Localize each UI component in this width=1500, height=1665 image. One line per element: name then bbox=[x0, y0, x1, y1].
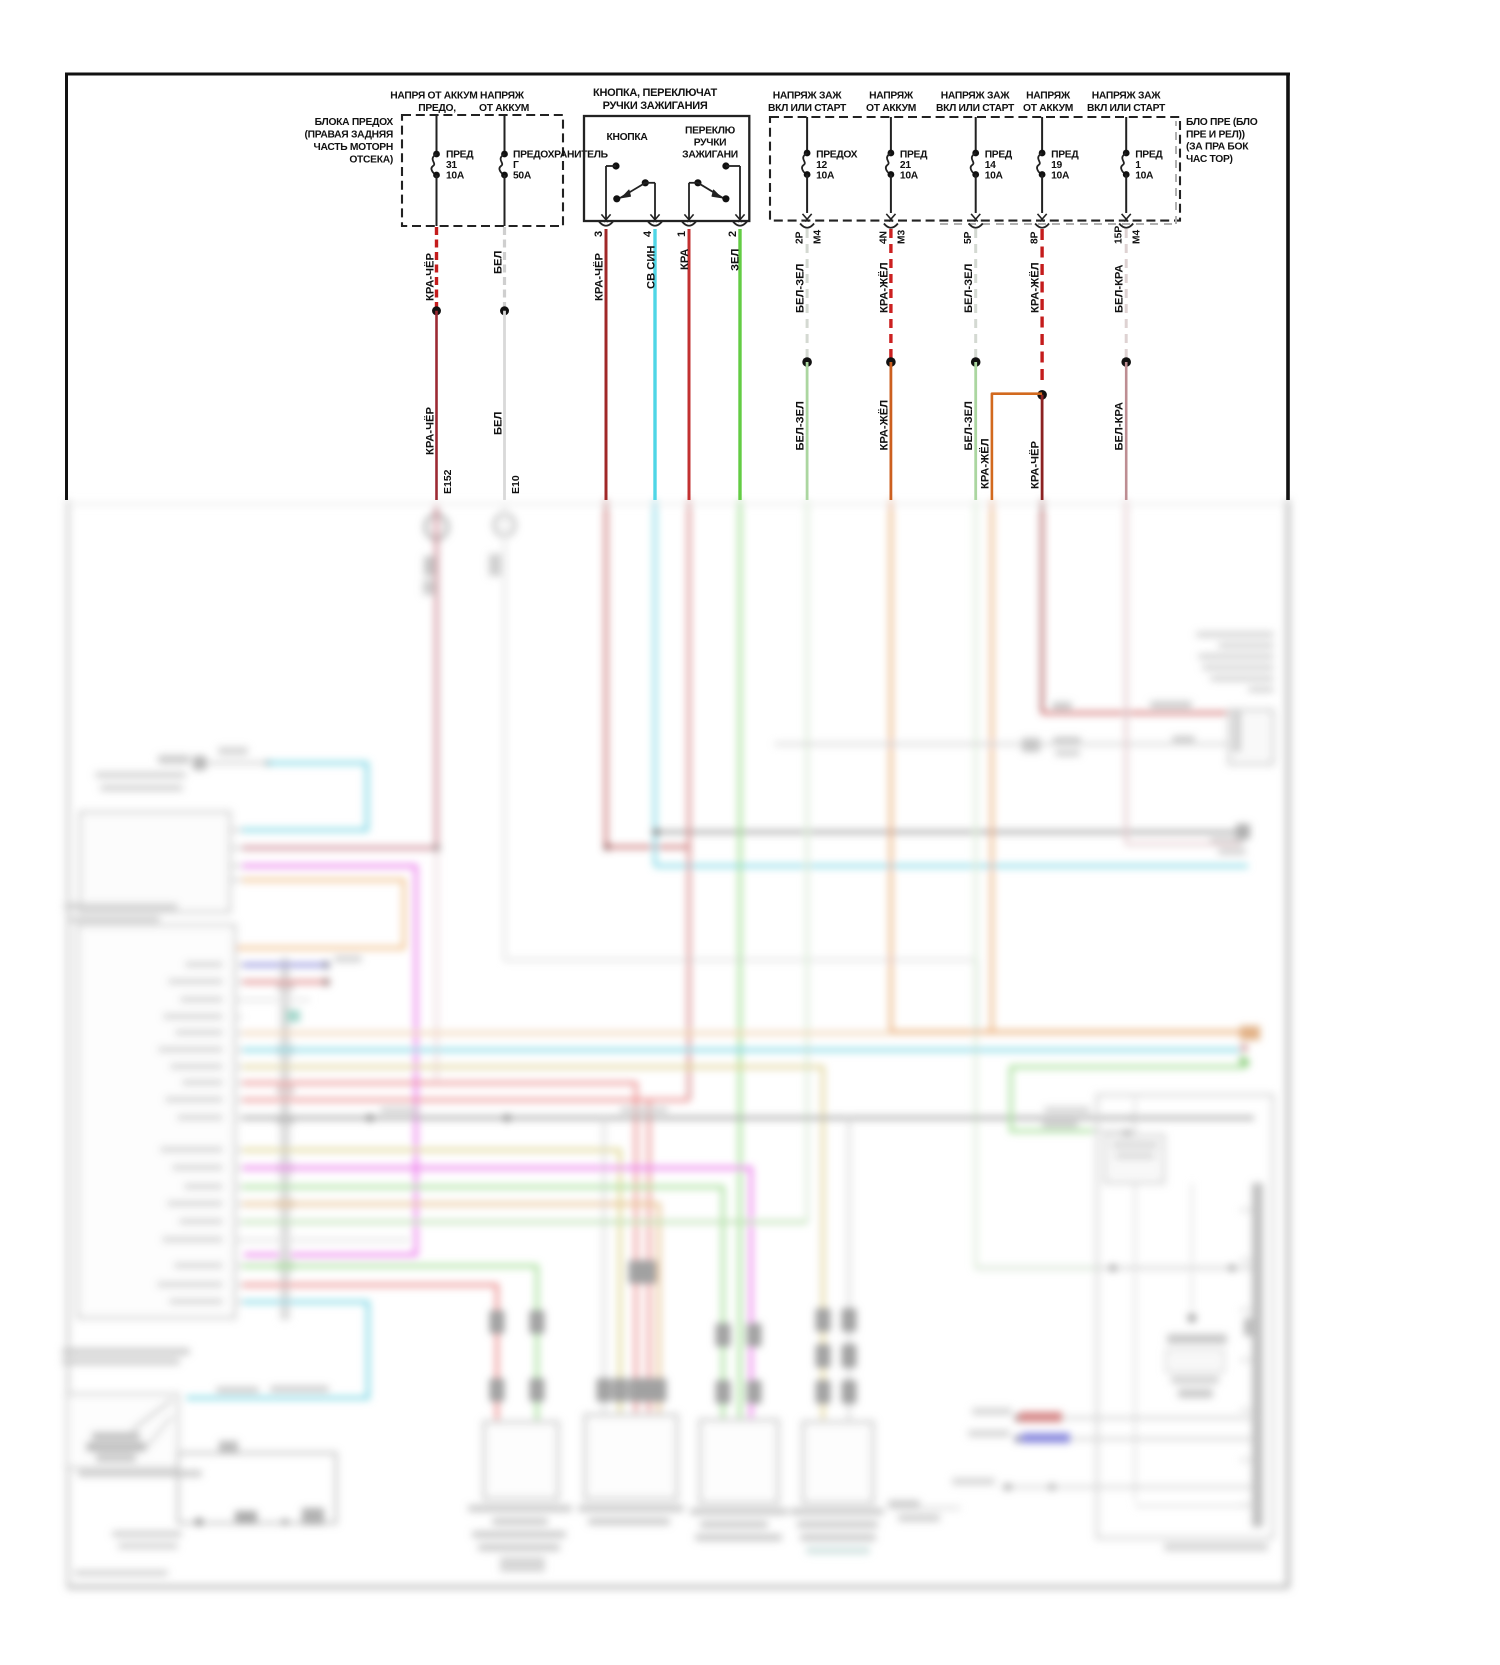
svg-text:ЗЕЛ: ЗЕЛ bbox=[730, 249, 742, 271]
svg-text:ОТ АККУМ: ОТ АККУМ bbox=[866, 103, 916, 114]
svg-text:M4: M4 bbox=[813, 230, 824, 244]
svg-text:ПРЕДОХРАНИТЕЛЬ: ПРЕДОХРАНИТЕЛЬ bbox=[513, 150, 609, 161]
svg-text:КРА-ЖЁЛ: КРА-ЖЁЛ bbox=[877, 400, 890, 451]
svg-text:(ПРАВАЯ ЗАДНЯЯ: (ПРАВАЯ ЗАДНЯЯ bbox=[305, 130, 394, 141]
svg-text:ПРЕДОХ: ПРЕДОХ bbox=[816, 150, 858, 161]
svg-text:ПРЕД: ПРЕД bbox=[1135, 150, 1163, 161]
svg-text:ПРЕД: ПРЕД bbox=[900, 150, 928, 161]
svg-text:ПРЕД: ПРЕД bbox=[446, 150, 474, 161]
svg-text:КРА: КРА bbox=[679, 249, 691, 270]
svg-text:10А: 10А bbox=[1135, 171, 1154, 182]
svg-text:БЕЛ: БЕЛ bbox=[493, 250, 505, 274]
svg-text:1: 1 bbox=[1135, 160, 1141, 171]
svg-text:10А: 10А bbox=[900, 171, 919, 182]
svg-text:БЕЛ-КРА: БЕЛ-КРА bbox=[1114, 265, 1126, 313]
svg-text:Е10: Е10 bbox=[510, 475, 522, 494]
svg-text:НАПРЯЖ ЗАЖ: НАПРЯЖ ЗАЖ bbox=[1092, 91, 1162, 102]
svg-text:БЛО ПРЕ (БЛО: БЛО ПРЕ (БЛО bbox=[1186, 117, 1258, 128]
svg-text:10А: 10А bbox=[1051, 171, 1070, 182]
svg-text:БЕЛ: БЕЛ bbox=[493, 411, 505, 435]
svg-text:НАПРЯЖ: НАПРЯЖ bbox=[1026, 91, 1071, 102]
svg-text:РУЧКИ: РУЧКИ bbox=[694, 138, 727, 149]
svg-text:15P: 15P bbox=[1114, 226, 1125, 244]
svg-text:2: 2 bbox=[727, 231, 739, 237]
svg-text:ПРЕД: ПРЕД bbox=[1051, 150, 1079, 161]
svg-text:БЛОКА ПРЕДОХ: БЛОКА ПРЕДОХ bbox=[315, 117, 394, 128]
svg-text:Е152: Е152 bbox=[442, 469, 454, 494]
svg-text:1: 1 bbox=[676, 231, 688, 237]
svg-text:21: 21 bbox=[900, 160, 911, 171]
svg-text:ВКЛ ИЛИ СТАРТ: ВКЛ ИЛИ СТАРТ bbox=[768, 103, 847, 114]
svg-text:10А: 10А bbox=[985, 171, 1004, 182]
svg-text:ОТ АККУМ: ОТ АККУМ bbox=[1023, 103, 1073, 114]
svg-text:4N: 4N bbox=[878, 231, 889, 244]
svg-text:КНОПКА: КНОПКА bbox=[606, 132, 648, 143]
svg-text:БЕЛ-ЗЕЛ: БЕЛ-ЗЕЛ bbox=[963, 401, 975, 451]
svg-text:Г: Г bbox=[513, 160, 519, 171]
svg-text:КРА-ЧЁР: КРА-ЧЁР bbox=[424, 407, 437, 455]
svg-text:ПРЕДО,: ПРЕДО, bbox=[418, 103, 456, 114]
svg-text:ПРЕ И РЕЛ)): ПРЕ И РЕЛ)) bbox=[1186, 129, 1245, 140]
svg-text:СВ СИН: СВ СИН bbox=[646, 246, 658, 289]
svg-text:3: 3 bbox=[593, 231, 605, 237]
svg-text:12: 12 bbox=[816, 160, 827, 171]
svg-text:ОТСЕКА): ОТСЕКА) bbox=[349, 155, 393, 166]
svg-text:ВКЛ ИЛИ СТАРТ: ВКЛ ИЛИ СТАРТ bbox=[1087, 103, 1166, 114]
svg-text:14: 14 bbox=[985, 160, 996, 171]
svg-text:ЧАС ТОР): ЧАС ТОР) bbox=[1186, 154, 1233, 165]
svg-text:ПЕРЕКЛЮ: ПЕРЕКЛЮ bbox=[685, 126, 736, 137]
svg-text:КРА-ЖЁЛ: КРА-ЖЁЛ bbox=[877, 262, 890, 313]
svg-text:(ЗА ПРА БОК: (ЗА ПРА БОК bbox=[1186, 142, 1249, 153]
svg-text:31: 31 bbox=[446, 160, 457, 171]
svg-text:НАПРЯЖ ЗАЖ: НАПРЯЖ ЗАЖ bbox=[773, 91, 843, 102]
svg-text:M4: M4 bbox=[1132, 230, 1143, 244]
svg-text:ЧАСТЬ МОТОРН: ЧАСТЬ МОТОРН bbox=[314, 142, 393, 153]
svg-text:2P: 2P bbox=[795, 231, 806, 244]
svg-text:БЕЛ-ЗЕЛ: БЕЛ-ЗЕЛ bbox=[963, 263, 975, 313]
svg-text:ЗАЖИГАНИ: ЗАЖИГАНИ bbox=[682, 150, 738, 161]
svg-text:НАПРЯЖ: НАПРЯЖ bbox=[869, 91, 914, 102]
svg-text:КРА-ЖЁЛ: КРА-ЖЁЛ bbox=[979, 438, 992, 489]
svg-text:8P: 8P bbox=[1030, 231, 1041, 244]
svg-text:КРА-ЖЁЛ: КРА-ЖЁЛ bbox=[1029, 262, 1042, 313]
svg-text:НАПРЯЖ ЗАЖ: НАПРЯЖ ЗАЖ bbox=[941, 91, 1011, 102]
svg-text:КРА-ЧЁР: КРА-ЧЁР bbox=[424, 253, 437, 301]
svg-text:19: 19 bbox=[1051, 160, 1062, 171]
svg-text:4: 4 bbox=[642, 230, 654, 237]
svg-text:10А: 10А bbox=[446, 171, 465, 182]
svg-text:КРА-ЧЁР: КРА-ЧЁР bbox=[1029, 441, 1042, 489]
svg-text:БЕЛ-ЗЕЛ: БЕЛ-ЗЕЛ bbox=[795, 401, 807, 451]
svg-text:ВКЛ ИЛИ СТАРТ: ВКЛ ИЛИ СТАРТ bbox=[936, 103, 1015, 114]
svg-text:ОТ АККУМ: ОТ АККУМ bbox=[479, 103, 529, 114]
svg-text:10А: 10А bbox=[816, 171, 835, 182]
svg-text:НАПРЯ ОТ АККУМ НАПРЯЖ: НАПРЯ ОТ АККУМ НАПРЯЖ bbox=[390, 91, 524, 102]
svg-text:5P: 5P bbox=[963, 231, 974, 244]
svg-text:КНОПКА, ПЕРЕКЛЮЧАТ: КНОПКА, ПЕРЕКЛЮЧАТ bbox=[593, 87, 717, 99]
svg-text:БЕЛ-ЗЕЛ: БЕЛ-ЗЕЛ bbox=[795, 263, 807, 313]
svg-text:M3: M3 bbox=[896, 230, 907, 244]
svg-text:КРА-ЧЁР: КРА-ЧЁР bbox=[593, 253, 606, 301]
svg-text:РУЧКИ ЗАЖИГАНИЯ: РУЧКИ ЗАЖИГАНИЯ bbox=[603, 100, 708, 112]
svg-text:50А: 50А bbox=[513, 171, 532, 182]
svg-text:ПРЕД: ПРЕД bbox=[985, 150, 1013, 161]
svg-text:БЕЛ-КРА: БЕЛ-КРА bbox=[1114, 402, 1126, 450]
